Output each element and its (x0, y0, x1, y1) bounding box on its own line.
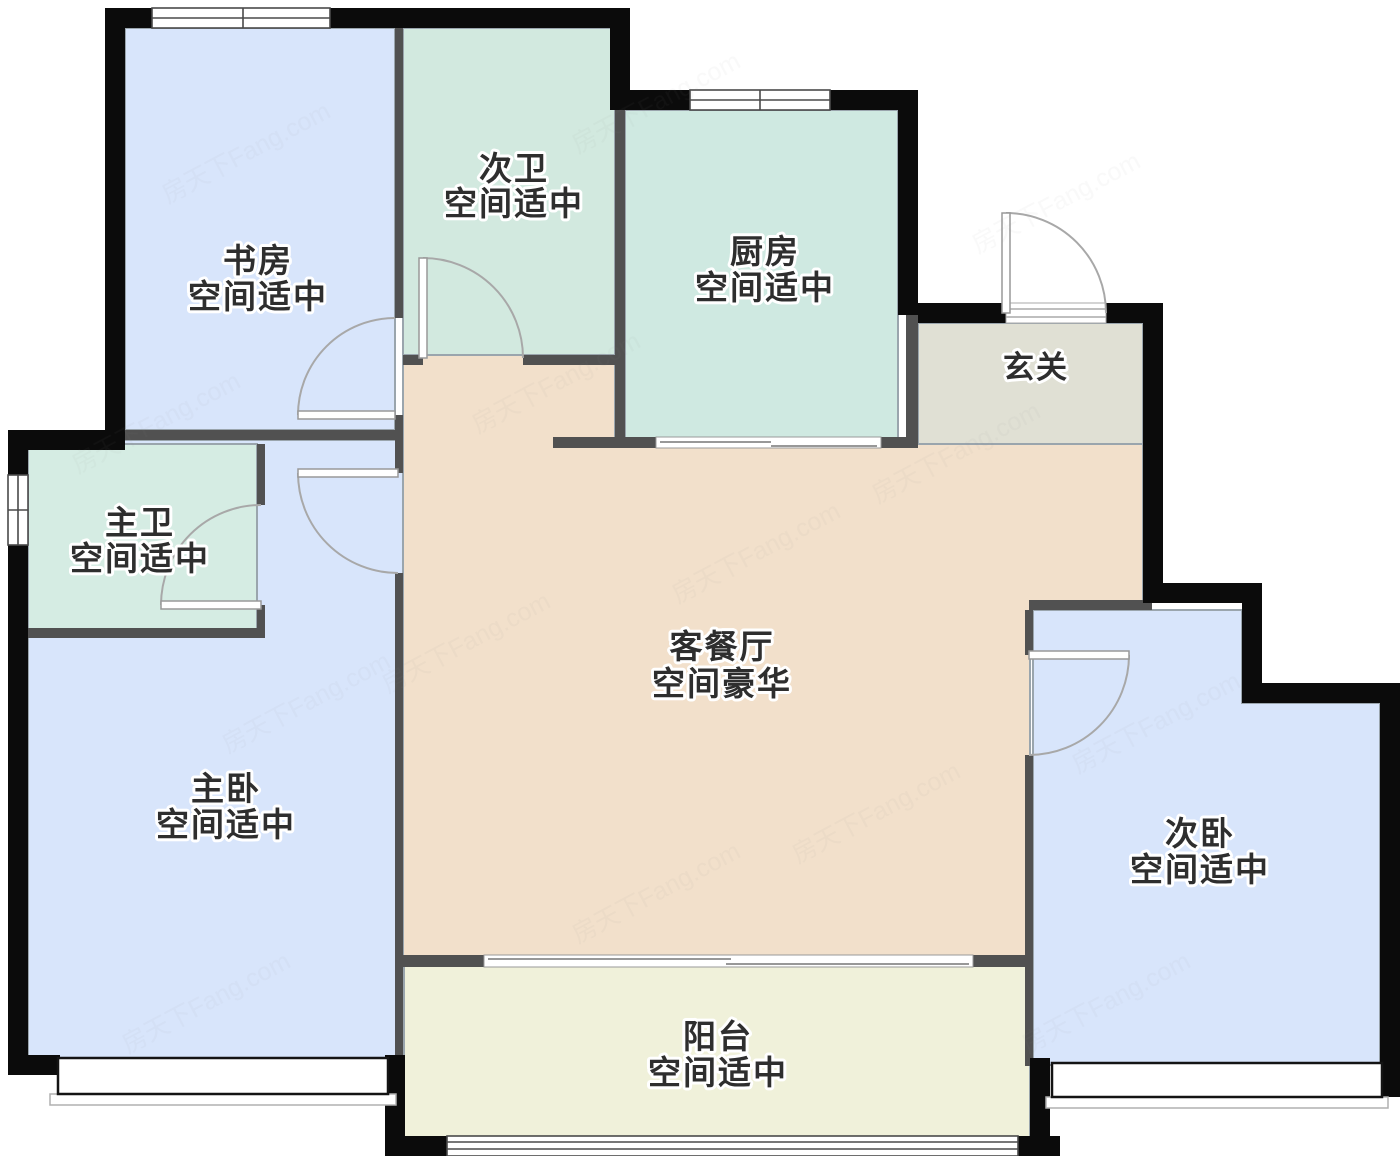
label-study-desc: 空间适中 (188, 278, 328, 315)
label-bath2-name: 次卫 (479, 150, 549, 187)
label-living-desc: 空间豪华 (652, 665, 792, 702)
wall-segment (395, 415, 403, 473)
wall-segment (973, 955, 1030, 967)
door-leaf-master (298, 469, 398, 477)
wall-segment (395, 28, 403, 318)
wall-segment (553, 437, 656, 448)
bay-window-bed2 (1052, 1063, 1382, 1097)
bay-window-sill (50, 1094, 396, 1105)
wall-segment (28, 628, 265, 638)
balcony-slider (484, 955, 973, 967)
label-bed2-name: 次卧 (1165, 815, 1235, 852)
wall-segment (257, 444, 265, 505)
wall-segment (906, 315, 918, 448)
label-study-name: 书房 (223, 242, 293, 279)
window (447, 1136, 1018, 1156)
label-kitchen-desc: 空间适中 (695, 269, 835, 306)
wall-segment (395, 573, 403, 1066)
floor-plan-canvas: 房天下Fang.com 房天下Fang.com 房天下Fang.com 房天下F… (0, 0, 1400, 1156)
wall-exterior (898, 90, 918, 315)
entry-threshold (1006, 303, 1106, 323)
label-master-name: 主卧 (191, 770, 261, 807)
door-leaf-bath1 (161, 601, 261, 609)
wall-segment (1025, 755, 1033, 1066)
room-study (125, 28, 395, 430)
wall-exterior (918, 303, 1006, 323)
wall-segment (1029, 600, 1152, 610)
wall-segment (1025, 610, 1033, 655)
wall-segment (400, 955, 484, 967)
label-bath1-name: 主卫 (105, 504, 175, 541)
label-bed2-desc: 空间适中 (1130, 851, 1270, 888)
door-leaf-bath2 (419, 258, 427, 358)
label-balcony-desc: 空间适中 (648, 1054, 788, 1091)
label-master-desc: 空间适中 (156, 806, 296, 843)
wall-exterior (385, 1136, 447, 1156)
label-bath2-desc: 空间适中 (444, 185, 584, 222)
wall-exterior (8, 1055, 60, 1075)
wall-exterior (1242, 683, 1400, 703)
bay-window-master (58, 1058, 388, 1094)
wall-exterior (105, 8, 125, 430)
label-living-name: 客餐厅 (670, 628, 775, 665)
watermark-text: 房天下Fang.com (967, 147, 1145, 259)
label-foyer-name: 玄关 (1003, 350, 1069, 385)
door-leaf-study (298, 411, 395, 419)
wall-segment (615, 110, 625, 448)
door-leaf-bed2 (1029, 651, 1129, 659)
label-balcony-name: 阳台 (683, 1018, 753, 1055)
floor-plan: 房天下Fang.com 房天下Fang.com 房天下Fang.com 房天下F… (0, 0, 1400, 1156)
label-bath1-desc: 空间适中 (70, 540, 210, 577)
wall-exterior (1143, 303, 1163, 603)
wall-exterior (1380, 683, 1400, 1097)
label-kitchen-name: 厨房 (730, 233, 800, 270)
bay-window-sill (1046, 1097, 1388, 1108)
